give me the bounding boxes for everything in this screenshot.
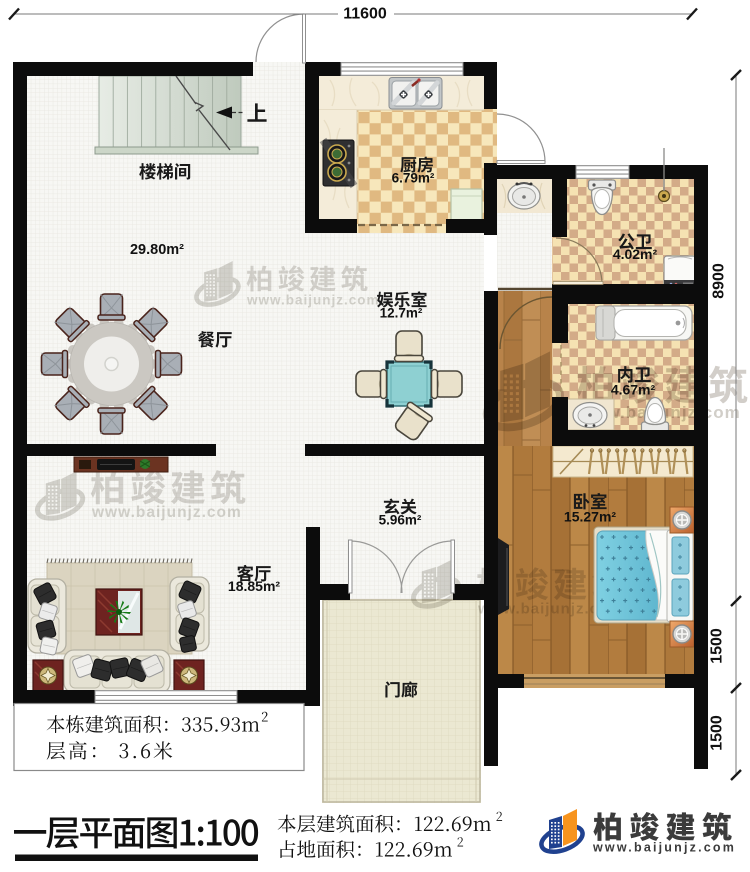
svg-text:11600: 11600 [343, 6, 387, 23]
svg-text:8900: 8900 [711, 263, 728, 299]
svg-text:18.85m²: 18.85m² [228, 578, 280, 594]
svg-text:1500: 1500 [709, 628, 726, 664]
svg-text:5.96m²: 5.96m² [379, 513, 422, 528]
svg-text:6.79m²: 6.79m² [392, 171, 435, 186]
svg-text:www.baijunjz.com: www.baijunjz.com [592, 841, 736, 855]
svg-text:4.67m²: 4.67m² [611, 382, 656, 398]
svg-text:www.baijunjz.com: www.baijunjz.com [91, 504, 242, 521]
svg-text:1500: 1500 [709, 715, 726, 751]
svg-text:29.80m²: 29.80m² [130, 242, 184, 258]
svg-text:www.baijunjz.com: www.baijunjz.com [246, 293, 380, 308]
svg-text:4.02m²: 4.02m² [613, 246, 658, 262]
svg-text:15.27m²: 15.27m² [564, 509, 616, 525]
svg-text:12.7m²: 12.7m² [380, 306, 423, 321]
